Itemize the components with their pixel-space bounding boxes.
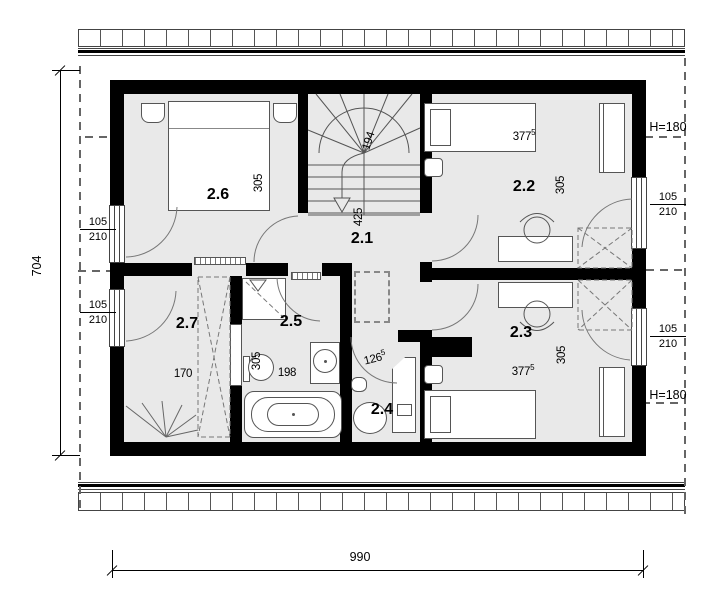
fixture-marker [250,280,266,291]
room-label-2-7: 2.7 [176,315,198,333]
chairs [520,214,554,331]
staircase [308,94,420,215]
dim-2-7-width: 170 [174,368,192,380]
window-label-right-upper: 105210 [650,190,686,219]
dim-ext-line [112,550,113,578]
window-label-left-upper: 105210 [80,215,116,244]
dim-line-left [60,70,61,455]
slope-hatch [126,401,198,437]
dim-2-3-width: 3775 [512,366,534,378]
height-mark-upper: H=180 [649,120,686,134]
room-label-2-6: 2.6 [207,186,229,204]
dim-ext-line [52,70,80,71]
room-label-2-5: 2.5 [280,313,302,331]
dim-2-2-depth: 305 [555,176,567,194]
window-label-right-lower: 105210 [650,322,686,351]
dim-overall-depth: 704 [30,256,44,277]
wardrobes-hatched [198,228,632,437]
floor-plan: 2.1 2.2 2.3 2.4 2.5 2.6 2.7 425 3775 305… [0,0,719,600]
dim-line-bottom [112,570,643,571]
dim-ext-line [643,550,644,578]
dim-hall-length: 425 [353,208,365,226]
dim-2-6-depth: 305 [253,174,265,192]
dim-ext-line [52,455,80,456]
dim-2-2-width: 3775 [513,131,535,143]
room-label-2-4: 2.4 [371,401,393,419]
dim-2-5-depth: 305 [251,352,263,370]
room-label-2-3: 2.3 [510,324,532,342]
dim-2-5-width: 198 [278,367,296,379]
dim-2-3-depth: 305 [556,346,568,364]
room-label-2-2: 2.2 [513,178,535,196]
dim-overall-width: 990 [350,550,371,564]
window-label-left-lower: 105210 [80,298,116,327]
window-swings [126,199,632,360]
height-mark-lower: H=180 [649,388,686,402]
room-label-2-1: 2.1 [351,230,373,248]
